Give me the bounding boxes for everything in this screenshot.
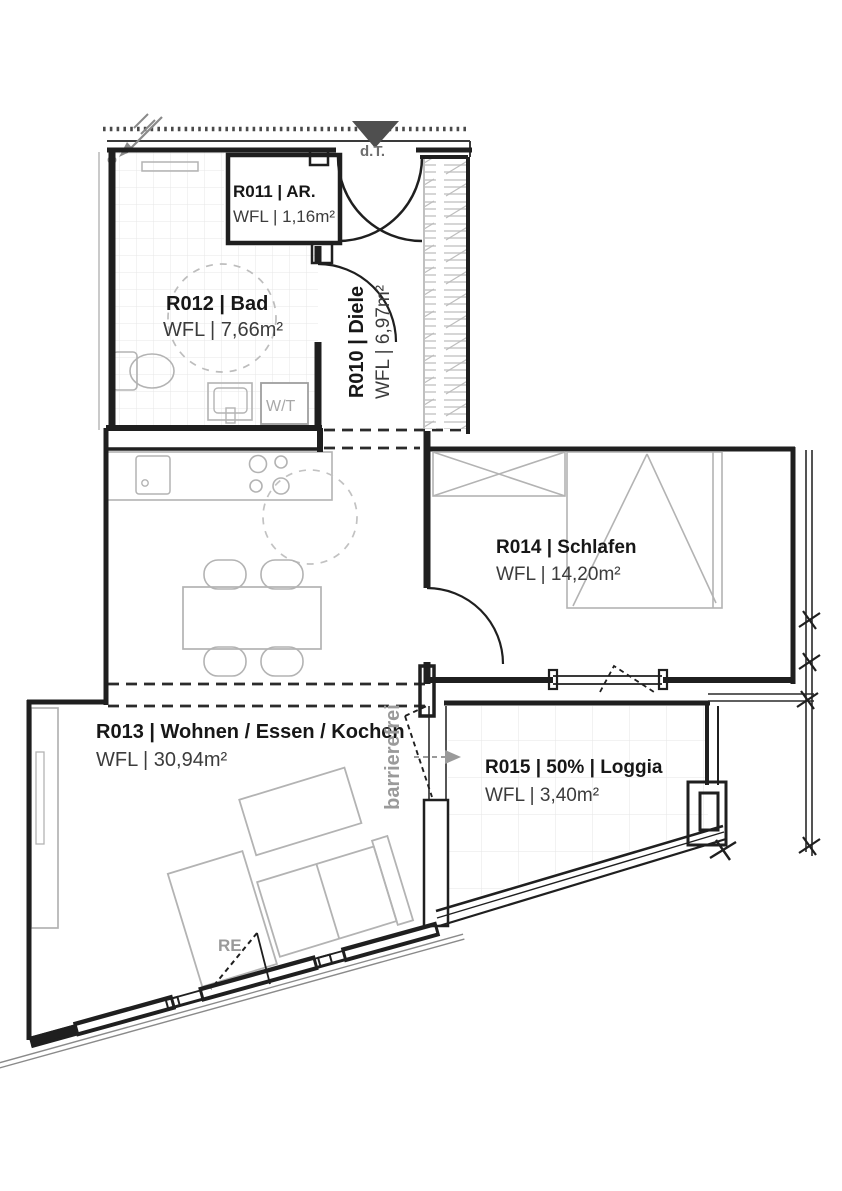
chair	[261, 560, 303, 589]
dashed-lines	[108, 430, 470, 706]
room-label-r010-area: WFL | 6,97m²	[373, 285, 394, 399]
chaise	[168, 851, 277, 987]
chair	[204, 560, 246, 589]
room-label-r012-area: WFL | 7,66m²	[163, 319, 283, 341]
kitchen-sink-icon	[136, 456, 170, 494]
chair	[204, 647, 246, 676]
barrier-free-label: barrierefrei	[382, 704, 404, 810]
kitchen	[107, 452, 357, 564]
wardrobe	[433, 452, 565, 496]
room-label-r010-name: R010 | Diele	[346, 286, 368, 398]
re-vent-label: RE	[218, 936, 242, 955]
washer-dryer-label: W/T	[266, 398, 296, 415]
sofa-armrest	[372, 836, 413, 925]
room-label-r011-area: WFL | 1,16m²	[233, 207, 335, 226]
chair	[261, 647, 303, 676]
floor-plan-page: R011 | AR. WFL | 1,16m² R012 | Bad WFL |…	[0, 0, 842, 1191]
room-label-r015-name: R015 | 50% | Loggia	[485, 757, 663, 778]
sideboard	[31, 708, 58, 928]
survey-mark-icon	[797, 611, 820, 855]
room-label-r012-name: R012 | Bad	[166, 293, 268, 315]
dining-set	[183, 560, 321, 676]
bedroom-window	[549, 666, 667, 692]
tv-board	[239, 768, 361, 856]
dining-table	[183, 587, 321, 649]
room-label-r015-area: WFL | 3,40m²	[485, 785, 599, 806]
room-label-r013-name: R013 | Wohnen / Essen / Kochen	[96, 721, 405, 743]
kitchen-counter	[107, 452, 332, 500]
loggia-side-wall	[424, 800, 448, 926]
room-label-r014-name: R014 | Schlafen	[496, 537, 637, 558]
entrance-door-label: d.T.	[360, 143, 385, 160]
doors	[318, 157, 503, 664]
room-label-r013-area: WFL | 30,94m²	[96, 749, 227, 771]
turning-circle-kitchen	[263, 470, 357, 564]
room-label-r011-name: R011 | AR.	[233, 182, 316, 201]
stairwell	[420, 157, 468, 434]
floor-plan: R011 | AR. WFL | 1,16m² R012 | Bad WFL |…	[0, 0, 842, 1191]
room-label-r014-area: WFL | 14,20m²	[496, 564, 621, 585]
bedroom-door-swing	[427, 588, 503, 664]
cooktop-icon	[250, 456, 290, 495]
